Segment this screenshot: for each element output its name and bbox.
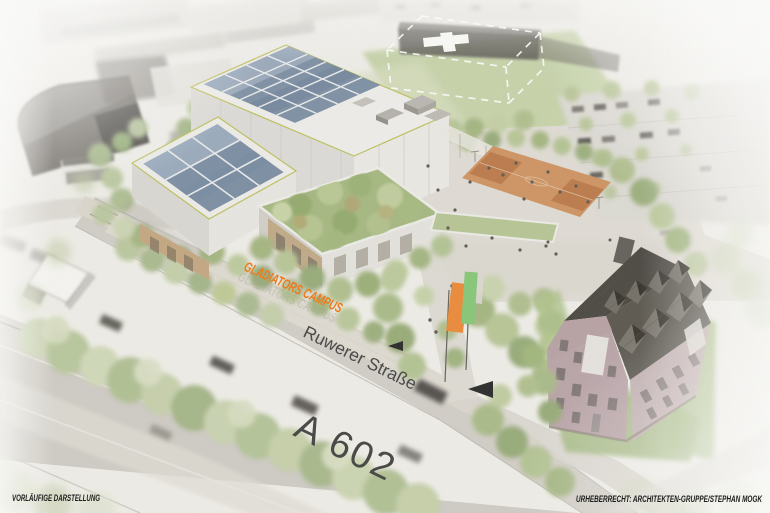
svg-text:VORLÄUFIGE DARSTELLUNG: VORLÄUFIGE DARSTELLUNG	[12, 493, 100, 503]
svg-text:URHEBERRECHT: ARCHITEKTEN-GRUP: URHEBERRECHT: ARCHITEKTEN-GRUPPE/STEPHAN…	[576, 494, 763, 504]
